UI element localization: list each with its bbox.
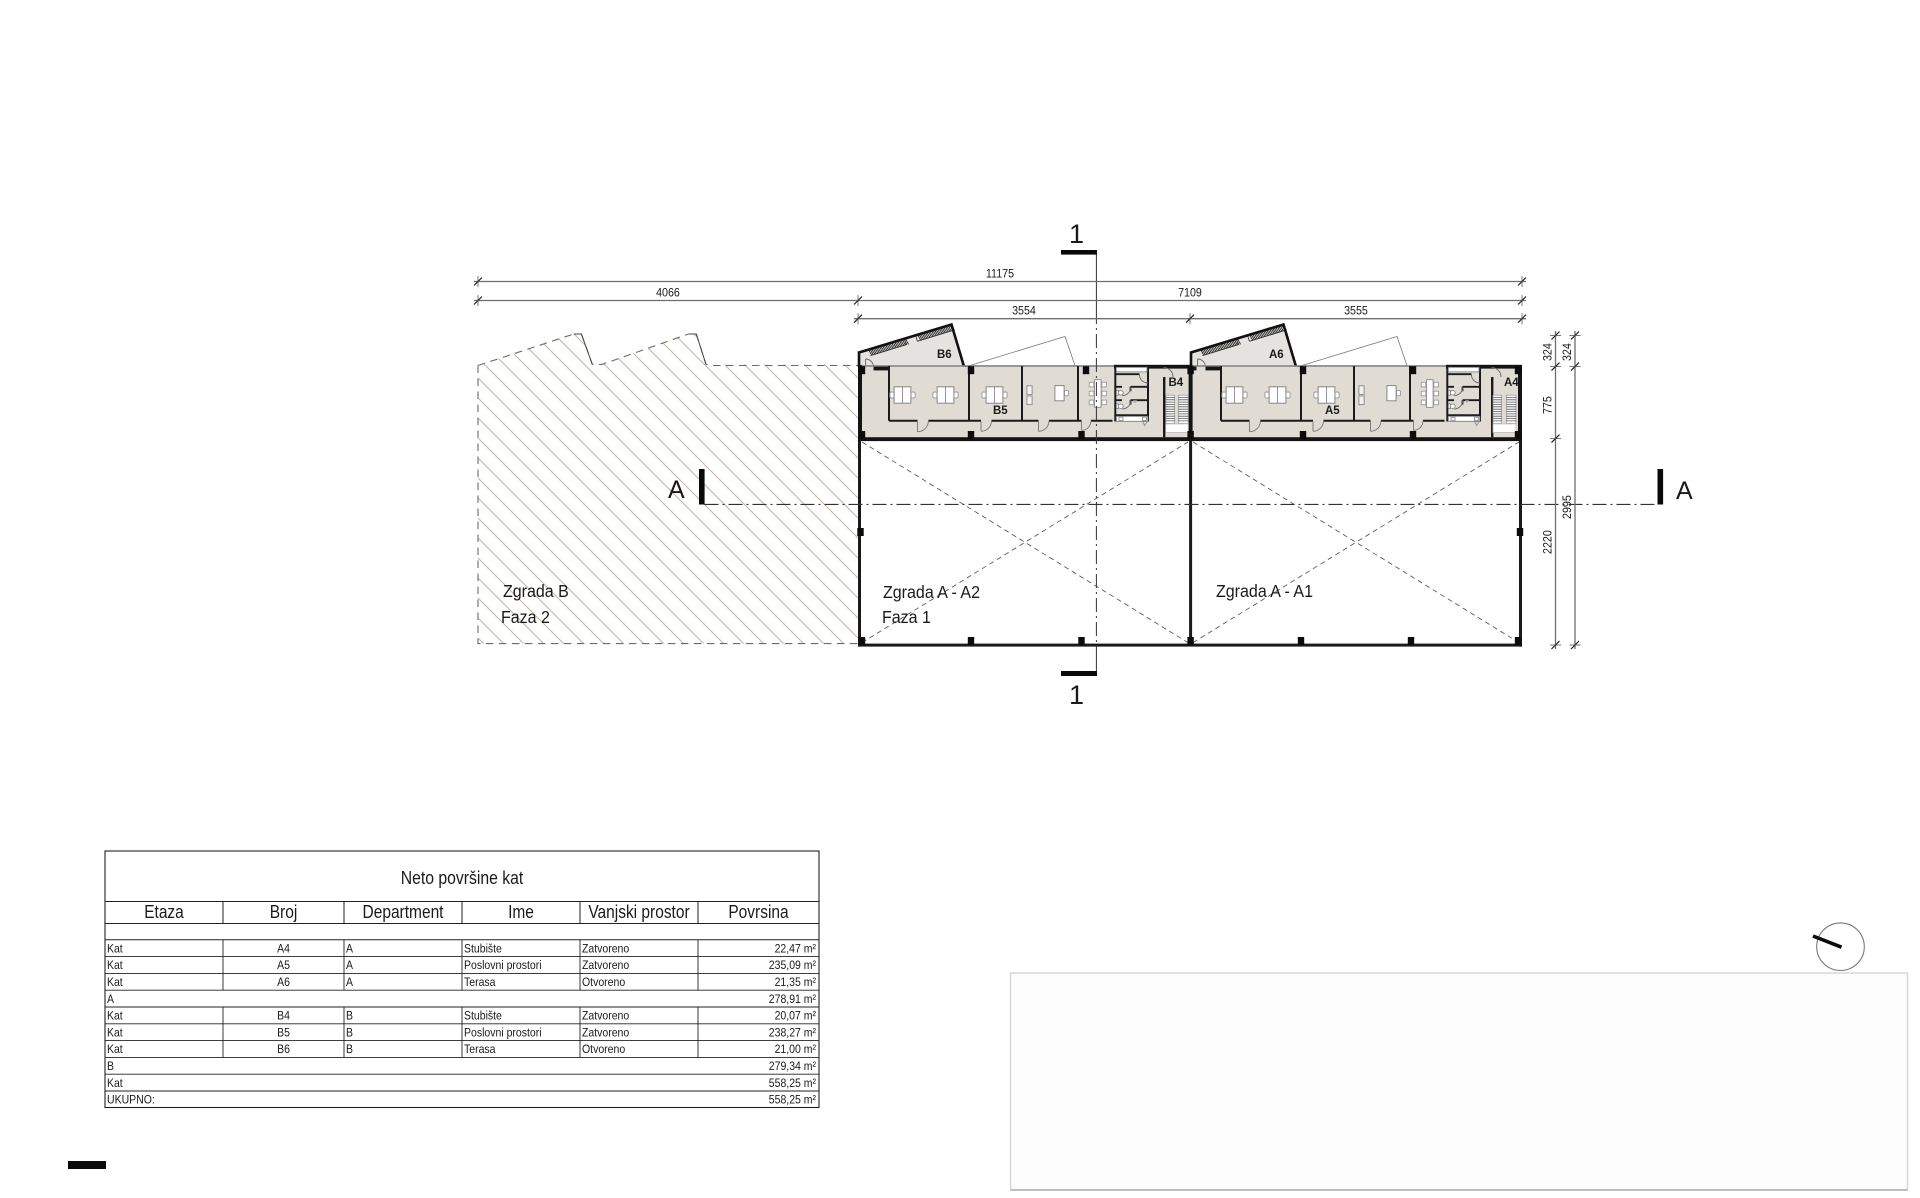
svg-text:Etaza: Etaza <box>144 902 184 923</box>
svg-text:558,25 m²: 558,25 m² <box>769 1076 816 1090</box>
svg-text:B6: B6 <box>277 1042 290 1056</box>
svg-text:21,00 m²: 21,00 m² <box>775 1042 816 1056</box>
svg-text:B4: B4 <box>1169 377 1184 389</box>
svg-text:2220: 2220 <box>1543 530 1555 554</box>
svg-text:558,25 m²: 558,25 m² <box>769 1093 816 1107</box>
svg-text:Poslovni prostori: Poslovni prostori <box>464 1025 542 1039</box>
svg-text:Vanjski prostor: Vanjski prostor <box>588 902 689 923</box>
svg-text:A: A <box>346 941 354 955</box>
svg-text:Kat: Kat <box>107 958 123 972</box>
svg-text:Zatvoreno: Zatvoreno <box>582 958 629 972</box>
svg-text:Zgrada A - A2: Zgrada A - A2 <box>883 582 980 602</box>
svg-text:A: A <box>346 958 354 972</box>
svg-text:278,91 m²: 278,91 m² <box>769 992 816 1006</box>
svg-text:Zatvoreno: Zatvoreno <box>582 1009 629 1023</box>
svg-text:4066: 4066 <box>656 288 680 300</box>
svg-text:B: B <box>346 1042 353 1056</box>
svg-text:Faza 2: Faza 2 <box>501 607 550 627</box>
svg-text:279,34 m²: 279,34 m² <box>769 1059 816 1073</box>
svg-text:324: 324 <box>1562 343 1574 361</box>
svg-text:Terasa: Terasa <box>464 1042 496 1056</box>
svg-text:A6: A6 <box>277 975 290 989</box>
svg-text:Broj: Broj <box>270 902 298 923</box>
svg-text:Zgrada A - A1: Zgrada A - A1 <box>1216 581 1313 601</box>
svg-text:Kat: Kat <box>107 1025 123 1039</box>
svg-text:Stubište: Stubište <box>464 1009 502 1023</box>
svg-text:Zatvoreno: Zatvoreno <box>582 1025 629 1039</box>
svg-text:7109: 7109 <box>1178 288 1202 300</box>
svg-text:B: B <box>346 1009 353 1023</box>
svg-text:B5: B5 <box>993 405 1008 417</box>
svg-text:Poslovni prostori: Poslovni prostori <box>464 958 542 972</box>
svg-text:B: B <box>346 1025 353 1039</box>
svg-text:A6: A6 <box>1269 349 1284 361</box>
svg-text:235,09 m²: 235,09 m² <box>769 958 816 972</box>
svg-text:2995: 2995 <box>1562 495 1574 519</box>
svg-text:324: 324 <box>1543 343 1555 361</box>
svg-text:Kat: Kat <box>107 1076 123 1090</box>
svg-text:1: 1 <box>1069 680 1084 710</box>
svg-text:Kat: Kat <box>107 1042 123 1056</box>
svg-text:20,07 m²: 20,07 m² <box>775 1009 816 1023</box>
svg-text:A5: A5 <box>1325 405 1340 417</box>
svg-text:Otvoreno: Otvoreno <box>582 975 625 989</box>
svg-text:3554: 3554 <box>1012 306 1036 318</box>
svg-text:Kat: Kat <box>107 941 123 955</box>
svg-text:Kat: Kat <box>107 1009 123 1023</box>
svg-text:1: 1 <box>1069 219 1084 249</box>
svg-text:Otvoreno: Otvoreno <box>582 1042 625 1056</box>
svg-text:22,47 m²: 22,47 m² <box>775 941 816 955</box>
svg-text:Ime: Ime <box>508 902 534 923</box>
svg-text:B6: B6 <box>937 349 952 361</box>
svg-text:A: A <box>107 992 115 1006</box>
svg-text:A: A <box>346 975 354 989</box>
svg-text:11175: 11175 <box>986 269 1014 281</box>
svg-text:B4: B4 <box>277 1009 290 1023</box>
svg-text:Zgrada B: Zgrada B <box>503 581 569 601</box>
svg-text:Faza 1: Faza 1 <box>882 607 931 627</box>
svg-text:A: A <box>1676 477 1693 505</box>
svg-text:Department: Department <box>363 902 445 923</box>
svg-text:A5: A5 <box>277 958 290 972</box>
svg-text:21,35 m²: 21,35 m² <box>775 975 816 989</box>
svg-text:A4: A4 <box>277 941 290 955</box>
svg-text:775: 775 <box>1543 396 1555 414</box>
svg-text:B: B <box>107 1059 114 1073</box>
svg-text:238,27 m²: 238,27 m² <box>769 1025 816 1039</box>
svg-text:3555: 3555 <box>1344 306 1368 318</box>
svg-text:A4: A4 <box>1504 377 1519 389</box>
svg-text:Terasa: Terasa <box>464 975 496 989</box>
svg-text:B5: B5 <box>277 1025 290 1039</box>
svg-text:Povrsina: Povrsina <box>728 902 789 923</box>
svg-text:Zatvoreno: Zatvoreno <box>582 941 629 955</box>
svg-text:Neto površine kat: Neto površine kat <box>401 867 524 888</box>
svg-text:Stubište: Stubište <box>464 941 502 955</box>
svg-text:A: A <box>668 476 685 504</box>
svg-text:Kat: Kat <box>107 975 123 989</box>
svg-text:UKUPNO:: UKUPNO: <box>107 1093 155 1107</box>
